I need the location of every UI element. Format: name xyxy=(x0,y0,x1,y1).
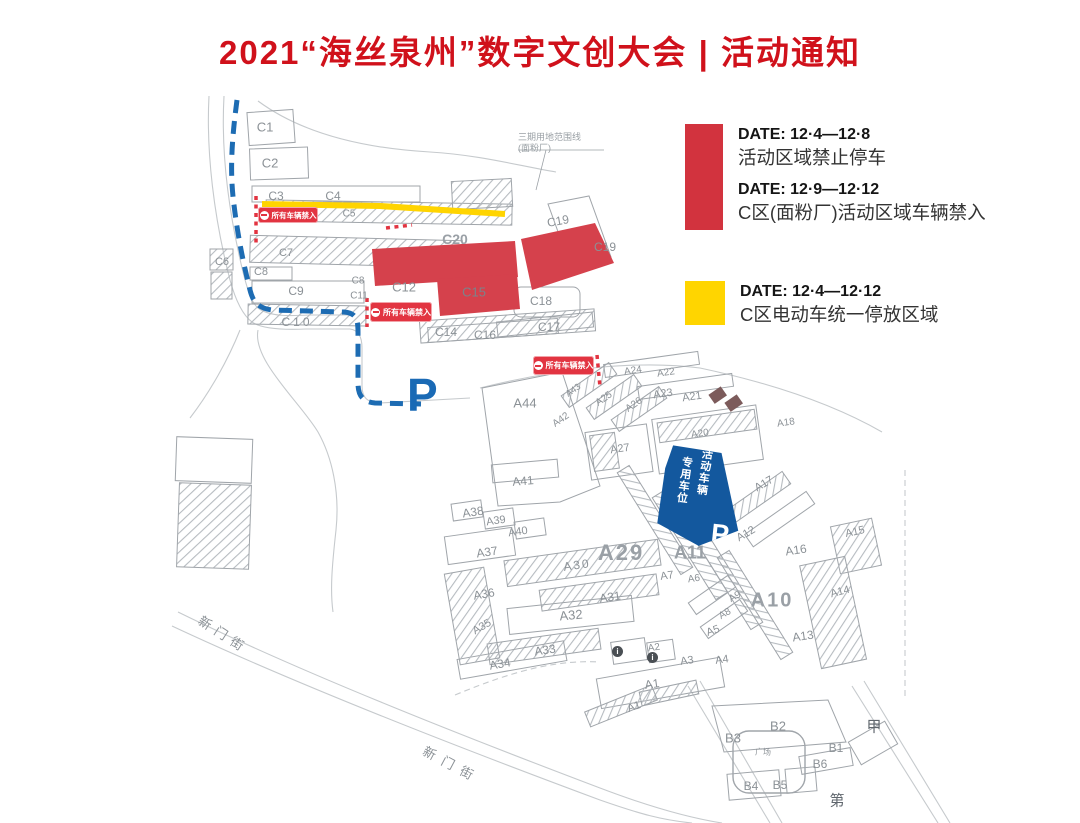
legend-date: DATE: 12·4—12·8 xyxy=(738,124,986,145)
legend-date: DATE: 12·9—12·12 xyxy=(738,179,986,200)
info-icon: i xyxy=(647,652,658,663)
legend-yellow-swatch xyxy=(685,281,725,325)
map-label-B5: B5 xyxy=(773,778,788,792)
map-label-A4: A4 xyxy=(714,653,729,667)
map-label-C11: C11 xyxy=(350,291,368,302)
map-label-B1: B1 xyxy=(829,741,844,755)
map-label-A38: A38 xyxy=(461,504,484,521)
no-entry-badge: 所有车辆禁入 xyxy=(370,302,432,322)
legend-desc: 活动区域禁止停车 xyxy=(738,145,986,171)
map-label-A7: A7 xyxy=(659,569,674,583)
map-label-C8: C8 xyxy=(254,266,268,278)
map-label-C10: C10 xyxy=(281,315,312,329)
site-note-leader xyxy=(518,150,604,190)
map-label-A3: A3 xyxy=(679,654,694,668)
map-label-A6: A6 xyxy=(687,573,701,586)
parking-marker-p: P xyxy=(407,368,438,422)
map-label-A11: A11 xyxy=(674,543,706,564)
legend-desc: C区电动车统一停放区域 xyxy=(740,302,938,328)
legend-date: DATE: 12·4—12·12 xyxy=(740,281,938,302)
map-label-A32: A32 xyxy=(559,607,583,624)
map-label-C19: C19 xyxy=(594,240,616,254)
map-label-A16: A16 xyxy=(784,542,807,559)
map-label-A29: A29 xyxy=(598,540,644,566)
map-label-第: 第 xyxy=(829,790,844,811)
map-label-C9: C9 xyxy=(288,284,303,298)
map-label-A1: A1 xyxy=(644,676,660,692)
map-label-A37: A37 xyxy=(475,544,498,561)
no-entry-icon xyxy=(260,211,269,220)
map-label-C3: C3 xyxy=(268,189,283,203)
site-note-line2: (面粉厂) xyxy=(518,143,581,154)
map-label-A44: A44 xyxy=(513,396,536,411)
map-label-B6: B6 xyxy=(813,757,828,771)
map-label-C8: C8 xyxy=(352,276,365,287)
no-entry-badge-label: 所有车辆禁入 xyxy=(272,210,317,221)
map-label-A31: A31 xyxy=(598,589,621,606)
legend-ebike: DATE: 12·4—12·12 C区电动车统一停放区域 xyxy=(685,281,1070,336)
map-label-C2: C2 xyxy=(262,156,279,171)
map-label-A33: A33 xyxy=(533,642,556,659)
legend-no-parking: DATE: 12·4—12·8 活动区域禁止停车 DATE: 12·9—12·1… xyxy=(685,124,1070,234)
map-label-甲: 甲 xyxy=(866,716,881,737)
legend-no-parking-texts: DATE: 12·4—12·8 活动区域禁止停车 DATE: 12·9—12·1… xyxy=(738,124,986,234)
map-label-C6: C6 xyxy=(215,256,229,268)
map-label-C18: C18 xyxy=(530,294,552,308)
map-label-C1: C1 xyxy=(257,120,274,135)
no-entry-icon xyxy=(371,308,380,317)
map-label-C5: C5 xyxy=(343,209,356,220)
legend-desc: C区(面粉厂)活动区域车辆禁入 xyxy=(738,200,986,226)
legend-entry: DATE: 12·9—12·12 C区(面粉厂)活动区域车辆禁入 xyxy=(738,179,986,226)
map-label-C16: C16 xyxy=(474,328,496,342)
map-label-A13: A13 xyxy=(791,628,814,645)
map-label-C20: C20 xyxy=(442,231,468,247)
parking-zone-text-left: 专用车位 xyxy=(672,455,695,505)
map-label-C14: C14 xyxy=(435,325,457,339)
event-notice-poster: 2021“海丝泉州”数字文创大会 | 活动通知 DATE: 12·4—12·8 … xyxy=(0,0,1080,823)
map-label-C4: C4 xyxy=(325,189,340,203)
legend-entry: DATE: 12·4—12·8 活动区域禁止停车 xyxy=(738,124,986,171)
map-label-C12: C12 xyxy=(392,280,416,295)
map-label-C7: C7 xyxy=(279,247,293,259)
map-label-B4: B4 xyxy=(744,779,759,793)
map-label-A41: A41 xyxy=(512,473,534,489)
legend-red-swatch xyxy=(685,124,723,230)
legend: DATE: 12·4—12·8 活动区域禁止停车 DATE: 12·9—12·1… xyxy=(685,124,1070,336)
legend-entry: DATE: 12·4—12·12 C区电动车统一停放区域 xyxy=(740,281,938,328)
site-note: 三期用地范围线 (面粉厂) xyxy=(518,132,581,154)
site-note-line1: 三期用地范围线 xyxy=(518,132,581,143)
parking-zone-text-right: 活动车辆 xyxy=(693,447,716,497)
no-entry-badge: 所有车辆禁入 xyxy=(533,356,594,375)
map-label-B3: B3 xyxy=(725,731,741,746)
map-label-C15: C15 xyxy=(462,285,486,300)
page-title: 2021“海丝泉州”数字文创大会 | 活动通知 xyxy=(0,26,1080,74)
info-icon: i xyxy=(612,646,623,657)
map-label-B2: B2 xyxy=(770,719,786,734)
map-label-C17: C17 xyxy=(538,320,560,334)
no-entry-badge-label: 所有车辆禁入 xyxy=(383,307,431,318)
legend-ebike-texts: DATE: 12·4—12·12 C区电动车统一停放区域 xyxy=(740,281,938,336)
map-label-广场: 广场 xyxy=(755,747,771,758)
no-entry-badge: 所有车辆禁入 xyxy=(258,207,318,223)
map-label-A10: A10 xyxy=(751,590,794,613)
no-entry-badge-label: 所有车辆禁入 xyxy=(546,360,594,371)
no-entry-icon xyxy=(534,361,543,370)
